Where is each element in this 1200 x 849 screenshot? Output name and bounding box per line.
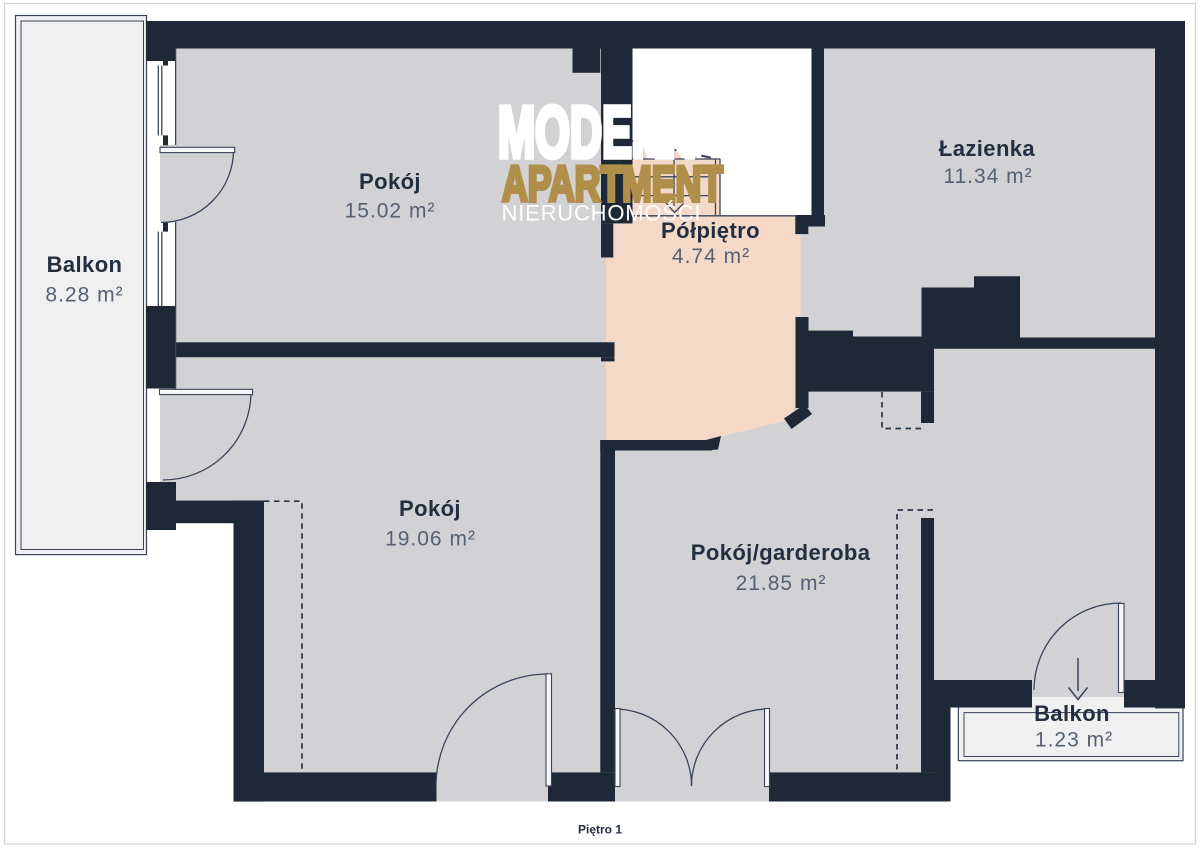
svg-text:Piętro 1: Piętro 1: [578, 823, 622, 837]
svg-text:4.74 m²: 4.74 m²: [672, 245, 750, 268]
svg-text:21.85 m²: 21.85 m²: [736, 572, 827, 595]
svg-text:15.02 m²: 15.02 m²: [345, 200, 436, 223]
svg-text:Balkon: Balkon: [47, 252, 123, 277]
svg-text:Pokój: Pokój: [399, 496, 461, 521]
svg-text:Balkon: Balkon: [1034, 701, 1110, 726]
svg-text:Pokój/garderoba: Pokój/garderoba: [691, 540, 871, 565]
svg-text:19.06 m²: 19.06 m²: [385, 528, 476, 551]
svg-text:Łazienka: Łazienka: [939, 136, 1035, 161]
svg-text:1.23 m²: 1.23 m²: [1035, 729, 1113, 752]
svg-text:Półpiętro: Półpiętro: [661, 218, 760, 243]
svg-text:Pokój: Pokój: [359, 169, 421, 194]
svg-text:11.34 m²: 11.34 m²: [943, 165, 1032, 188]
svg-text:8.28 m²: 8.28 m²: [45, 284, 123, 307]
